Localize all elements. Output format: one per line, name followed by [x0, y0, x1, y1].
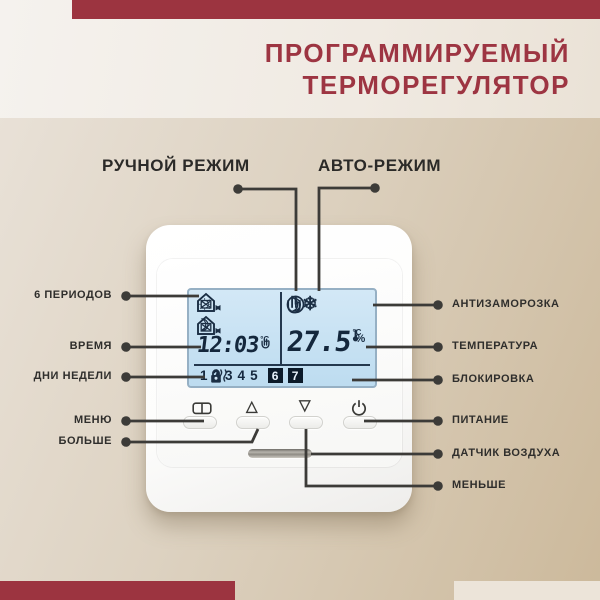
- day-5: 5: [250, 368, 258, 383]
- label-decrease: МЕНЬШЕ: [452, 479, 506, 491]
- lcd-display: ☼ ☽: [187, 288, 377, 388]
- bottom-right-accent-bar: [454, 581, 600, 600]
- label-periods: 6 ПЕРИОДОВ: [0, 289, 112, 301]
- bottom-left-accent-bar: [0, 581, 235, 600]
- lock-icon: [209, 368, 223, 384]
- menu-button: [183, 416, 217, 429]
- label-temperature: ТЕМПЕРАТУРА: [452, 340, 538, 352]
- infographic-canvas: ПРОГРАММИРУЕМЫЙ ТЕРМОРЕГУЛЯТОР РУЧНОЙ РЕ…: [0, 0, 600, 600]
- temperature-block: 27.5 °C %: [287, 328, 365, 356]
- house-work-return-icon: [195, 291, 222, 314]
- time-block: 12:03 °C: [197, 335, 269, 357]
- mode-icons-row: ☽ ❄: [285, 291, 318, 318]
- lcd-vertical-divider: [280, 292, 282, 364]
- auto-mode-label: АВТО-РЕЖИМ: [318, 156, 441, 176]
- power-icon: [350, 399, 368, 416]
- title-line-1: ПРОГРАММИРУЕМЫЙ: [265, 37, 570, 69]
- day-6-active: 6: [268, 368, 283, 383]
- temperature-value: 27.5: [285, 328, 352, 356]
- day-7-active: 7: [288, 368, 303, 383]
- title-line-2: ТЕРМОРЕГУЛЯТОР: [265, 69, 570, 101]
- triangle-down-icon: ▽: [299, 398, 311, 413]
- week-days-row: 1 2 3 4 5 6 7: [200, 367, 303, 384]
- thermostat-device: ☼ ☽: [146, 225, 412, 512]
- label-antifreeze: АНТИЗАМОРОЗКА: [452, 298, 560, 310]
- label-power: ПИТАНИЕ: [452, 414, 509, 426]
- page-title: ПРОГРАММИРУЕМЫЙ ТЕРМОРЕГУЛЯТОР: [265, 37, 570, 101]
- manual-mode-label: РУЧНОЙ РЕЖИМ: [102, 156, 250, 176]
- label-menu: МЕНЮ: [0, 414, 112, 426]
- top-accent-bar: [72, 0, 600, 19]
- label-weekdays: ДНИ НЕДЕЛИ: [0, 370, 112, 382]
- triangle-up-icon: △: [246, 399, 258, 414]
- time-value: 12:03: [196, 335, 260, 357]
- mini-hand-icon: [260, 337, 271, 350]
- label-air-sensor: ДАТЧИК ВОЗДУХА: [452, 447, 560, 459]
- menu-book-icon: [192, 402, 212, 415]
- label-lock: БЛОКИРОВКА: [452, 373, 534, 385]
- label-time: ВРЕМЯ: [0, 340, 112, 352]
- power-button: [343, 416, 377, 429]
- day-4: 4: [238, 368, 246, 383]
- clock-auto-icon: [285, 294, 306, 315]
- air-sensor-slot: [248, 449, 312, 458]
- decrease-button: [289, 416, 323, 429]
- increase-button: [236, 416, 270, 429]
- day-1: 1: [200, 368, 208, 383]
- period-icons-row-1: ☼: [195, 291, 214, 314]
- lcd-horizontal-divider: [194, 364, 370, 366]
- label-increase: БОЛЬШЕ: [0, 435, 112, 447]
- thermometer-icon: [352, 328, 359, 342]
